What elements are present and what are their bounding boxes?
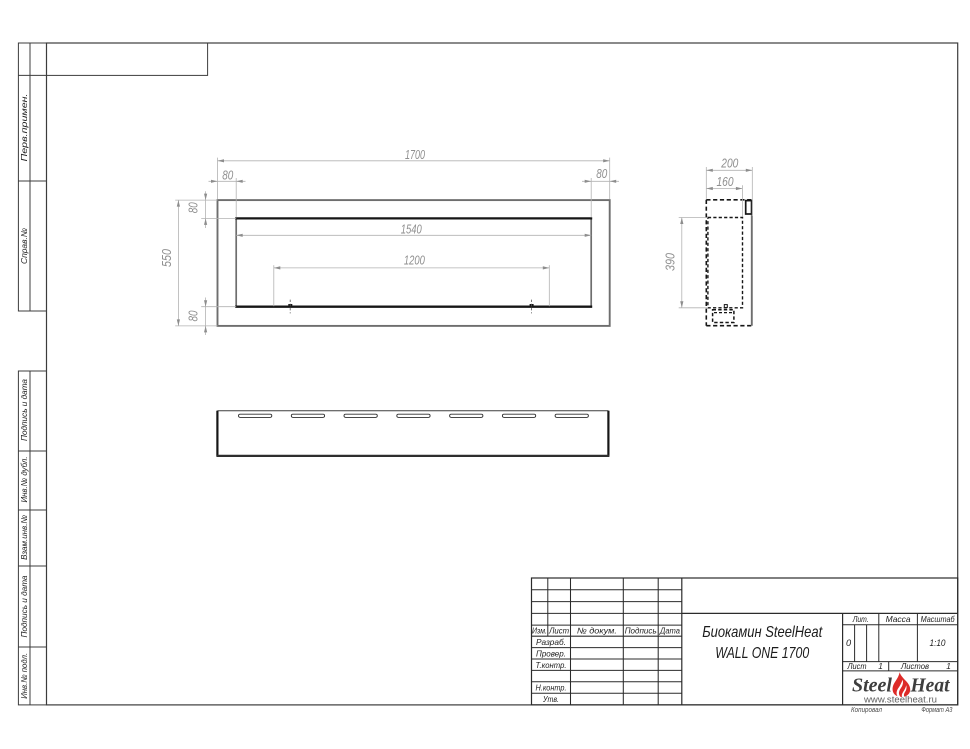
svg-text:550: 550 (160, 249, 174, 267)
svg-text:Масштаб: Масштаб (921, 614, 955, 624)
svg-text:Взам.инв.№: Взам.инв.№ (19, 515, 29, 560)
svg-text:Изм.: Изм. (532, 626, 547, 636)
svg-text:Копировал: Копировал (851, 705, 883, 714)
svg-text:200: 200 (720, 156, 738, 170)
svg-text:Т.контр.: Т.контр. (536, 660, 567, 670)
svg-text:80: 80 (222, 169, 233, 183)
svg-text:WALL ONE 1700: WALL ONE 1700 (715, 645, 809, 662)
svg-text:1700: 1700 (405, 148, 425, 162)
svg-text:80: 80 (186, 202, 200, 213)
svg-text:Масса: Масса (886, 614, 911, 624)
svg-text:1540: 1540 (401, 222, 422, 236)
svg-text:Лист: Лист (548, 626, 569, 636)
svg-text:www.steelheat.ru: www.steelheat.ru (863, 694, 937, 705)
svg-text:Подпись: Подпись (625, 626, 657, 636)
svg-text:Справ.№: Справ.№ (19, 228, 29, 264)
svg-text:Разраб.: Разраб. (536, 637, 566, 647)
svg-text:Формат А3: Формат А3 (921, 705, 953, 714)
svg-text:1200: 1200 (404, 254, 425, 268)
svg-text:Лит.: Лит. (852, 614, 869, 624)
svg-text:1: 1 (946, 661, 951, 671)
svg-text:Лист: Лист (847, 661, 867, 671)
svg-text:Подпись и дата: Подпись и дата (19, 379, 29, 441)
svg-text:№ докум.: № докум. (577, 626, 617, 636)
svg-text:Дата: Дата (659, 626, 680, 636)
svg-text:160: 160 (717, 175, 734, 189)
svg-text:80: 80 (186, 310, 200, 321)
svg-text:Провер.: Провер. (536, 648, 566, 658)
svg-text:1:10: 1:10 (930, 638, 947, 648)
svg-text:0: 0 (846, 638, 852, 648)
svg-text:Инв.№ подл.: Инв.№ подл. (19, 653, 29, 699)
svg-text:Инв.№ дубл.: Инв.№ дубл. (19, 457, 29, 503)
svg-text:Steel: Steel (852, 675, 892, 697)
svg-text:390: 390 (663, 253, 677, 271)
svg-text:80: 80 (596, 167, 607, 181)
svg-text:Утв.: Утв. (542, 694, 559, 704)
svg-text:Н.контр.: Н.контр. (536, 683, 567, 693)
svg-text:Подпись и дата: Подпись и дата (19, 575, 29, 637)
svg-text:Перв.примен.: Перв.примен. (19, 94, 29, 162)
svg-text:Листов: Листов (900, 661, 930, 671)
svg-text:Heat: Heat (910, 675, 951, 697)
svg-text:1: 1 (878, 661, 883, 671)
svg-text:Биокамин SteelHeat: Биокамин SteelHeat (702, 624, 822, 641)
